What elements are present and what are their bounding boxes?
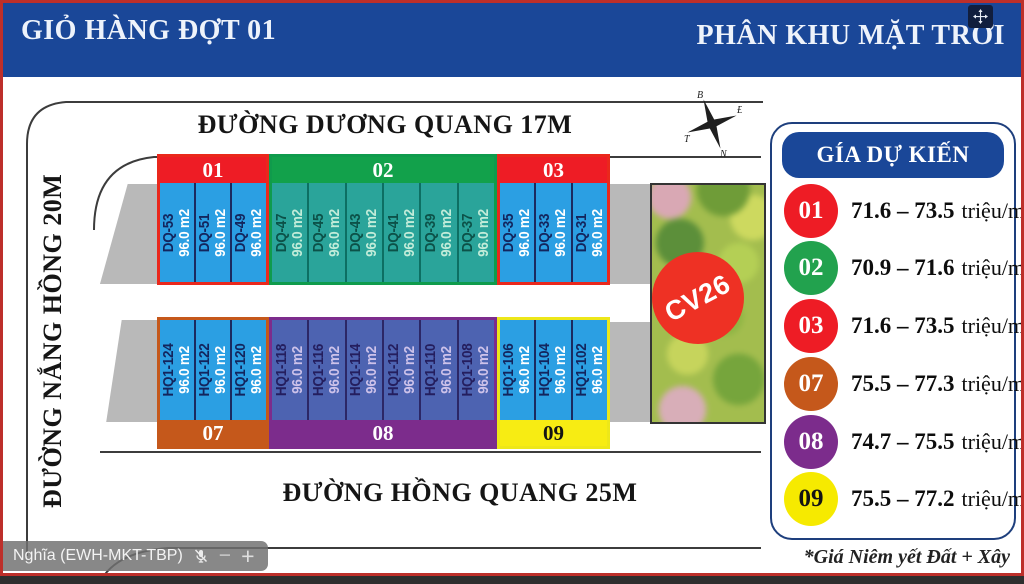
plot-area: 96.0 m2 xyxy=(177,344,193,397)
plot-area: 96.0 m2 xyxy=(590,344,606,397)
plot-card: DQ-49 96.0 m2 xyxy=(232,183,266,282)
plot-area: 96.0 m2 xyxy=(213,209,229,257)
legend-price: 71.6 – 73.5triệu/m2 xyxy=(851,313,1024,339)
legend-price: 75.5 – 77.3triệu/m2 xyxy=(851,371,1024,397)
plot-code: HQ1-116 xyxy=(311,344,327,396)
compass-east: Đ xyxy=(736,105,742,116)
plot-code: HQ1-106 xyxy=(501,344,517,397)
plot-card: DQ-37 96.0 m2 xyxy=(459,183,494,282)
plot-code: DQ-37 xyxy=(460,209,476,257)
plot-card: HQ1-110 96.0 m2 xyxy=(421,320,458,420)
block-01-header: 01 xyxy=(160,157,266,183)
move-cursor-icon[interactable] xyxy=(968,5,993,28)
minus-icon[interactable]: − xyxy=(219,544,231,568)
plot-card: HQ1-104 96.0 m2 xyxy=(536,320,572,420)
plot-card: HQ1-102 96.0 m2 xyxy=(573,320,607,420)
plot-code: HQ1-118 xyxy=(273,344,289,396)
legend-badge-09: 09 xyxy=(784,472,838,526)
compass-west: T xyxy=(684,134,691,145)
slide: CV26 B Đ N T ĐƯỜNG DƯƠNG QUANG 17M ĐƯỜNG… xyxy=(0,0,1024,584)
plot-area: 96.0 m2 xyxy=(364,344,380,396)
plot-code: HQ1-108 xyxy=(460,344,476,397)
legend-price: 70.9 – 71.6triệu/m2 xyxy=(851,255,1024,281)
screenshare-name-tag: Nghĩa (EWH-MKT-TBP) − + xyxy=(3,541,268,571)
street-label-top: ĐƯỜNG DƯƠNG QUANG 17M xyxy=(150,110,620,140)
block-07: HQ1-124 96.0 m2 HQ1-122 96.0 m2 HQ1-120 … xyxy=(157,317,269,449)
plot-code: DQ-51 xyxy=(197,209,213,257)
block-03: 03 DQ-35 96.0 m2 DQ-33 96.0 m2 DQ-31 96.… xyxy=(497,154,610,285)
plot-area: 96.0 m2 xyxy=(553,344,569,397)
plot-card: HQ1-108 96.0 m2 xyxy=(459,320,494,420)
plot-card: DQ-47 96.0 m2 xyxy=(272,183,309,282)
legend-row: 08 74.7 – 75.5triệu/m2 xyxy=(784,415,1006,469)
legend-rows: 01 71.6 – 73.5triệu/m2 02 70.9 – 71.6tri… xyxy=(772,178,1014,538)
plot-area: 96.0 m2 xyxy=(517,344,533,397)
plot-code: DQ-45 xyxy=(311,209,327,257)
plot-card: DQ-31 96.0 m2 xyxy=(573,183,607,282)
plot-card: HQ1-116 96.0 m2 xyxy=(309,320,346,420)
legend-badge-03: 03 xyxy=(784,299,838,353)
plot-card: HQ1-124 96.0 m2 xyxy=(160,320,196,420)
plot-area: 96.0 m2 xyxy=(590,209,606,257)
plot-code: DQ-35 xyxy=(501,209,517,257)
plot-card: DQ-51 96.0 m2 xyxy=(196,183,232,282)
price-legend-panel: GÍA DỰ KIẾN 01 71.6 – 73.5triệu/m2 02 70… xyxy=(770,122,1016,540)
plot-area: 96.0 m2 xyxy=(327,344,343,396)
block-09: HQ1-106 96.0 m2 HQ1-104 96.0 m2 HQ1-102 … xyxy=(497,317,610,449)
legend-price: 75.5 – 77.2triệu/m2 xyxy=(851,486,1024,512)
compass-south: N xyxy=(719,149,728,158)
plot-card: HQ1-118 96.0 m2 xyxy=(272,320,309,420)
plot-card: HQ1-106 96.0 m2 xyxy=(500,320,536,420)
plot-code: DQ-49 xyxy=(233,209,249,257)
plus-icon[interactable]: + xyxy=(241,543,254,570)
legend-row: 09 75.5 – 77.2triệu/m2 xyxy=(784,472,1006,526)
plot-code: DQ-39 xyxy=(423,209,439,257)
plot-card: DQ-39 96.0 m2 xyxy=(421,183,458,282)
plot-code: DQ-53 xyxy=(161,209,177,257)
plot-area: 96.0 m2 xyxy=(476,344,492,397)
block-08-header: 08 xyxy=(272,420,494,446)
plot-code: DQ-47 xyxy=(273,209,289,257)
plot-area: 96.0 m2 xyxy=(249,344,265,397)
page-title: GIỎ HÀNG ĐỢT 01 xyxy=(21,15,276,47)
plot-area: 96.0 m2 xyxy=(402,344,418,396)
plot-card: HQ1-122 96.0 m2 xyxy=(196,320,232,420)
header-banner: GIỎ HÀNG ĐỢT 01 PHÂN KHU MẶT TRỜI xyxy=(3,3,1021,77)
plot-area: 96.0 m2 xyxy=(439,209,455,257)
plot-area: 96.0 m2 xyxy=(476,209,492,257)
legend-badge-01: 01 xyxy=(784,184,838,238)
block-02-header: 02 xyxy=(272,157,494,183)
park-badge: CV26 xyxy=(652,252,744,344)
land-strip xyxy=(610,184,650,284)
mic-off-icon[interactable] xyxy=(193,548,209,564)
street-label-left: ĐƯỜNG NẮNG HỒNG 20M xyxy=(38,188,68,508)
legend-badge-02: 02 xyxy=(784,241,838,295)
plot-card: DQ-43 96.0 m2 xyxy=(347,183,384,282)
legend-title: GÍA DỰ KIẾN xyxy=(782,132,1004,178)
plot-card: HQ1-114 96.0 m2 xyxy=(347,320,384,420)
legend-row: 01 71.6 – 73.5triệu/m2 xyxy=(784,184,1006,238)
plot-code: HQ1-120 xyxy=(233,344,249,397)
block-03-header: 03 xyxy=(500,157,607,183)
legend-row: 07 75.5 – 77.3triệu/m2 xyxy=(784,357,1006,411)
plot-area: 96.0 m2 xyxy=(290,209,306,257)
plot-code: DQ-31 xyxy=(574,209,590,257)
legend-row: 02 70.9 – 71.6triệu/m2 xyxy=(784,241,1006,295)
plot-card: HQ1-112 96.0 m2 xyxy=(384,320,421,420)
legend-price: 71.6 – 73.5triệu/m2 xyxy=(851,198,1024,224)
plot-code: HQ1-110 xyxy=(423,344,439,396)
plot-code: HQ1-112 xyxy=(385,344,401,396)
plot-area: 96.0 m2 xyxy=(249,209,265,257)
park-label: CV26 xyxy=(660,268,736,328)
plot-area: 96.0 m2 xyxy=(439,344,455,396)
block-09-header: 09 xyxy=(500,420,607,446)
plot-area: 96.0 m2 xyxy=(290,344,306,396)
plot-code: DQ-41 xyxy=(385,209,401,257)
plot-code: HQ1-114 xyxy=(348,344,364,396)
price-footnote: *Giá Niêm yết Đất + Xây xyxy=(760,546,1014,569)
plot-card: DQ-45 96.0 m2 xyxy=(309,183,346,282)
plot-area: 96.0 m2 xyxy=(177,209,193,257)
plot-area: 96.0 m2 xyxy=(517,209,533,257)
block-02: 02 DQ-47 96.0 m2 DQ-45 96.0 m2 DQ-43 96.… xyxy=(269,154,497,285)
plot-code: DQ-43 xyxy=(348,209,364,257)
compass-north: B xyxy=(697,90,703,101)
plot-area: 96.0 m2 xyxy=(213,344,229,397)
plot-card: DQ-33 96.0 m2 xyxy=(536,183,572,282)
bottom-bar xyxy=(0,576,1024,584)
plot-area: 96.0 m2 xyxy=(553,209,569,257)
land-strip xyxy=(610,322,650,422)
presenter-name: Nghĩa (EWH-MKT-TBP) xyxy=(13,547,183,565)
plot-area: 96.0 m2 xyxy=(327,209,343,257)
plot-card: DQ-35 96.0 m2 xyxy=(500,183,536,282)
street-label-bottom: ĐƯỜNG HỒNG QUANG 25M xyxy=(225,478,695,508)
compass-rose: B Đ N T xyxy=(684,90,742,158)
legend-badge-07: 07 xyxy=(784,357,838,411)
legend-badge-08: 08 xyxy=(784,415,838,469)
plot-card: DQ-53 96.0 m2 xyxy=(160,183,196,282)
plot-card: DQ-41 96.0 m2 xyxy=(384,183,421,282)
plot-code: HQ1-102 xyxy=(574,344,590,397)
block-01: 01 DQ-53 96.0 m2 DQ-51 96.0 m2 DQ-49 96.… xyxy=(157,154,269,285)
plot-code: HQ1-124 xyxy=(161,344,177,397)
subdivision-title: PHÂN KHU MẶT TRỜI xyxy=(697,20,1006,52)
legend-row: 03 71.6 – 73.5triệu/m2 xyxy=(784,299,1006,353)
legend-price: 74.7 – 75.5triệu/m2 xyxy=(851,429,1024,455)
block-07-header: 07 xyxy=(160,420,266,446)
plot-card: HQ1-120 96.0 m2 xyxy=(232,320,266,420)
plot-area: 96.0 m2 xyxy=(364,209,380,257)
plot-area: 96.0 m2 xyxy=(402,209,418,257)
block-08: HQ1-118 96.0 m2 HQ1-116 96.0 m2 HQ1-114 … xyxy=(269,317,497,449)
plot-code: HQ1-122 xyxy=(197,344,213,397)
